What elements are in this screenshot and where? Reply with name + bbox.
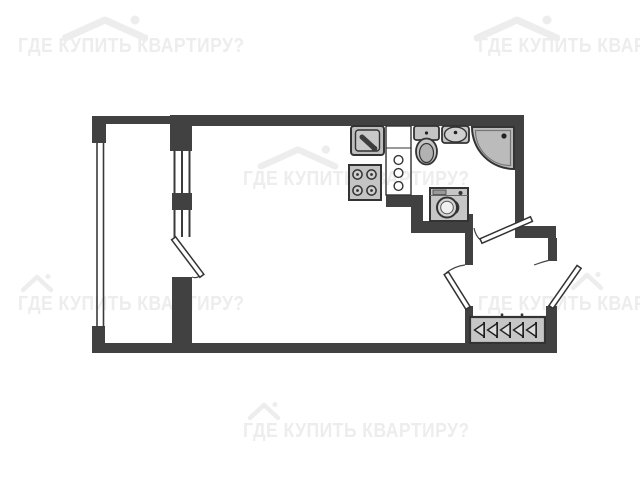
ventilation-shaft [386, 126, 411, 195]
toilet [414, 126, 439, 165]
room-door [444, 265, 470, 309]
shower-cabin [472, 127, 514, 169]
kitchen-sink [351, 126, 384, 155]
wall-shaft-step-b [411, 195, 423, 233]
balcony-glazing [97, 143, 104, 327]
wall-right-upper [515, 115, 524, 231]
wall-entrance-upper [548, 238, 557, 261]
washbasin [442, 126, 469, 143]
wardrobe-hangers [470, 314, 545, 344]
wall-balcony-inner-mid [172, 193, 192, 210]
stove [349, 165, 381, 200]
wall-balcony-inner-top [170, 115, 192, 151]
washing-machine [430, 188, 468, 221]
balcony-door [172, 237, 204, 278]
wall-nook-top [515, 226, 556, 238]
window-upper [175, 151, 190, 193]
window-lower [175, 210, 190, 237]
wall-bottom [92, 343, 557, 353]
wall-top-main [192, 115, 524, 126]
wall-balcony-inner-bottom [172, 277, 192, 345]
entrance-door [534, 260, 581, 308]
wall-entrance-lower [546, 306, 557, 353]
floorplan-screenshot: ГДЕ КУПИТЬ КВАРТИРУ? ГДЕ КУПИТЬ КВАРТИРУ… [0, 0, 640, 480]
wall-corner-topleft [92, 116, 106, 143]
floor-plan [0, 0, 640, 480]
